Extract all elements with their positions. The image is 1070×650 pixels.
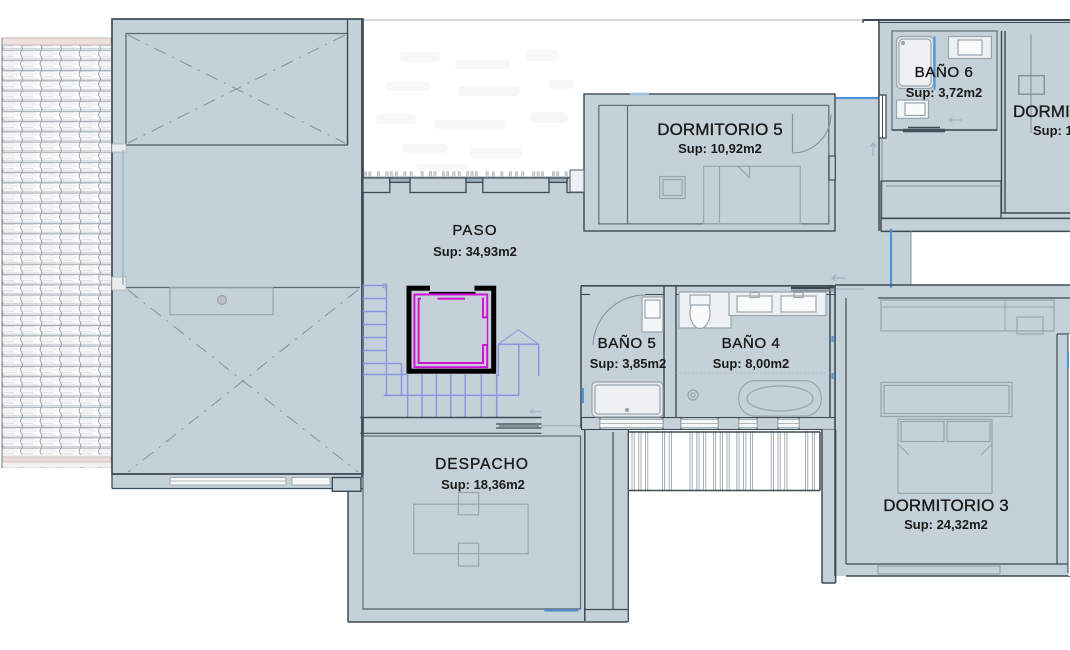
svg-text:BAÑO 6: BAÑO 6 [915, 64, 974, 81]
svg-text:DORMITORIO 5: DORMITORIO 5 [657, 120, 783, 139]
svg-text:Sup: 3,72m2: Sup: 3,72m2 [906, 85, 983, 100]
svg-text:Sup: 3,85m2: Sup: 3,85m2 [590, 356, 667, 371]
svg-text:Sup: 8,00m2: Sup: 8,00m2 [713, 356, 790, 371]
svg-text:Sup: 10,92m2: Sup: 10,92m2 [678, 141, 762, 156]
svg-text:BAÑO 4: BAÑO 4 [722, 335, 781, 352]
svg-text:DORMIT: DORMIT [1013, 102, 1070, 121]
svg-text:Sup: 1: Sup: 1 [1033, 123, 1070, 138]
svg-text:PASO: PASO [452, 222, 497, 239]
svg-text:Sup: 24,32m2: Sup: 24,32m2 [904, 517, 988, 532]
svg-text:BAÑO 5: BAÑO 5 [598, 335, 657, 352]
svg-text:Sup: 18,36m2: Sup: 18,36m2 [441, 477, 525, 492]
svg-text:DORMITORIO 3: DORMITORIO 3 [883, 496, 1009, 515]
svg-text:DESPACHO: DESPACHO [435, 456, 529, 473]
svg-text:Sup: 34,93m2: Sup: 34,93m2 [433, 244, 517, 259]
